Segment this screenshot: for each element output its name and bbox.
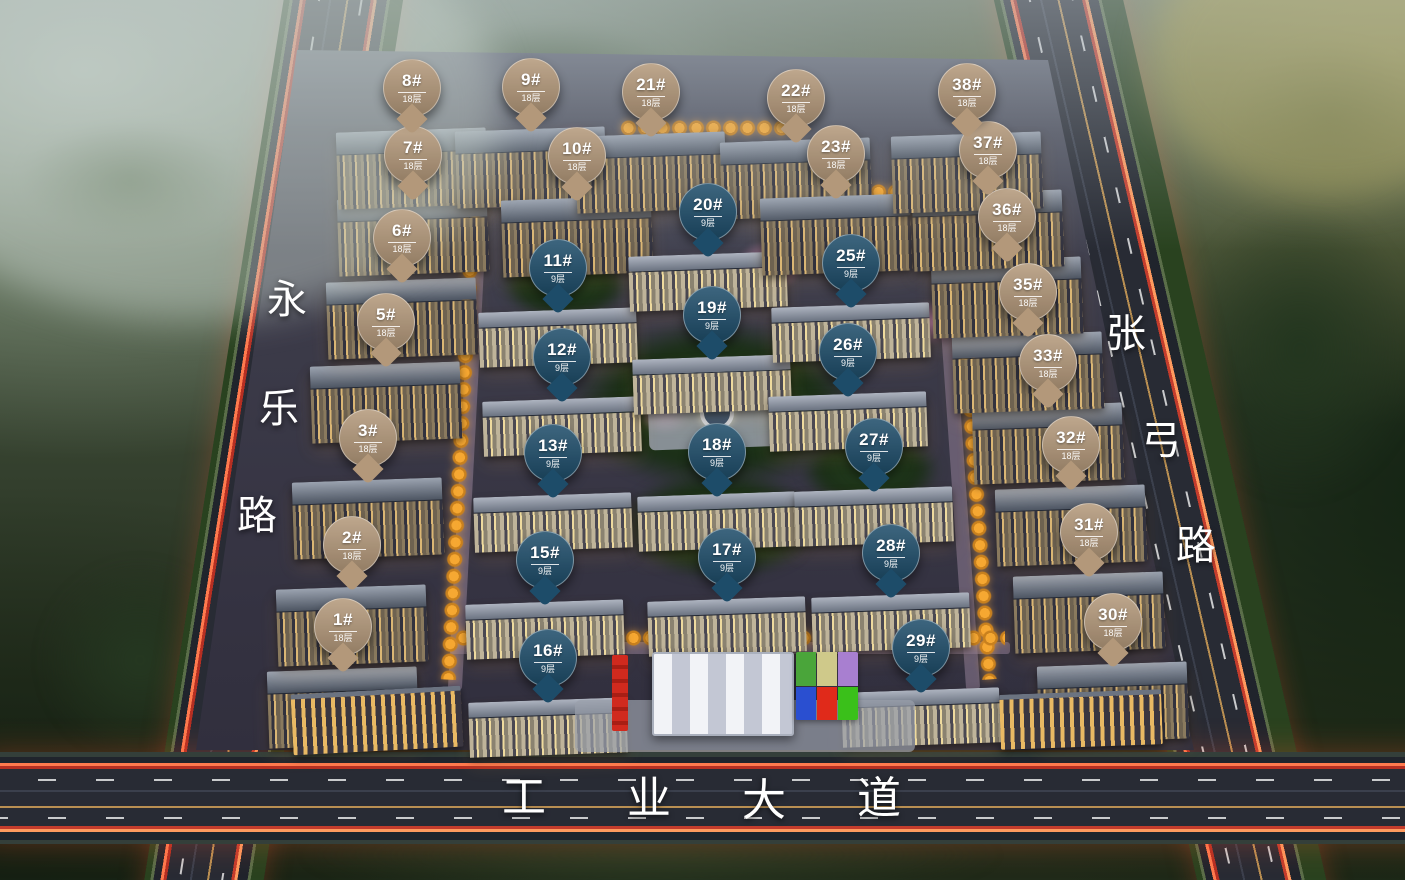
marker-floors: 18层: [1103, 629, 1122, 638]
marker-floors: 18层: [521, 94, 540, 103]
marker-number: 23#: [821, 138, 851, 156]
marker-floors: 9层: [701, 219, 715, 228]
marker-number: 15#: [530, 544, 560, 562]
marker-number: 29#: [906, 632, 936, 650]
marker-number: 12#: [547, 341, 577, 359]
marker-number: 10#: [562, 140, 592, 158]
marker-divider: [548, 361, 576, 362]
marker-number: 7#: [403, 139, 423, 157]
marker-floors: 18层: [1079, 539, 1098, 548]
marker-number: 20#: [693, 196, 723, 214]
marker-divider: [703, 456, 731, 457]
marker-number: 13#: [538, 437, 568, 455]
marker-floors: 18层: [1038, 370, 1057, 379]
mat-cell: [796, 687, 816, 721]
marker-floors: 18层: [997, 224, 1016, 233]
marker-number: 37#: [973, 134, 1003, 152]
marker-divider: [974, 154, 1002, 155]
marker-number: 35#: [1013, 276, 1043, 294]
marker-divider: [338, 549, 366, 550]
building-17: [647, 596, 807, 655]
marker-floors: 18层: [402, 95, 421, 104]
marker-floors: 18层: [978, 157, 997, 166]
marker-floors: 9层: [551, 275, 565, 284]
marker-floors: 9层: [538, 567, 552, 576]
road-name-char-yongle-road: 乐: [259, 376, 299, 434]
marker-number: 22#: [781, 82, 811, 100]
gongye-avenue-road: [0, 752, 1405, 844]
building-marker-10[interactable]: 10# 18层: [548, 127, 606, 185]
marker-divider: [698, 319, 726, 320]
building-marker-3[interactable]: 3# 18层: [339, 409, 397, 467]
marker-number: 3#: [358, 422, 378, 440]
mat-cell: [838, 652, 858, 686]
red-carpet-walk: [612, 655, 628, 731]
marker-number: 5#: [376, 306, 396, 324]
retail-strip: [291, 686, 464, 756]
marker-number: 1#: [333, 611, 353, 629]
building-marker-17[interactable]: 17# 9层: [698, 528, 756, 586]
building-marker-2[interactable]: 2# 18层: [323, 516, 381, 574]
marker-divider: [694, 216, 722, 217]
marker-divider: [1034, 367, 1062, 368]
marker-divider: [1099, 626, 1127, 627]
marker-floors: 18层: [1018, 299, 1037, 308]
marker-number: 31#: [1074, 516, 1104, 534]
building-marker-12[interactable]: 12# 9层: [533, 328, 591, 386]
road-name-char-gongye-avenue: 业: [627, 762, 671, 826]
building-marker-7[interactable]: 7# 18层: [384, 126, 442, 184]
building-marker-16[interactable]: 16# 9层: [519, 629, 577, 687]
building-marker-29[interactable]: 29# 9层: [892, 619, 950, 677]
marker-floors: 9层: [541, 665, 555, 674]
marker-floors: 9层: [844, 270, 858, 279]
marker-divider: [837, 267, 865, 268]
marker-divider: [860, 451, 888, 452]
road-name-char-yongle-road: 路: [237, 483, 277, 541]
marker-divider: [953, 96, 981, 97]
building-marker-30[interactable]: 30# 18层: [1084, 593, 1142, 651]
marker-number: 38#: [952, 76, 982, 94]
marker-divider: [1057, 449, 1085, 450]
marker-floors: 18层: [957, 99, 976, 108]
marker-number: 36#: [992, 201, 1022, 219]
road-name-char-zhanggong-road: 张: [1106, 301, 1146, 359]
building-marker-27[interactable]: 27# 9层: [845, 418, 903, 476]
marker-floors: 9层: [914, 655, 928, 664]
marker-divider: [544, 272, 572, 273]
marker-floors: 9层: [710, 459, 724, 468]
building-marker-8[interactable]: 8# 18层: [383, 59, 441, 117]
marker-floors: 18层: [641, 99, 660, 108]
masterplan-canvas: 永乐路张弓路工业大道 1# 18层2# 18层3# 18层5# 18层6#: [0, 0, 1405, 880]
mat-cell: [838, 687, 858, 721]
marker-number: 16#: [533, 642, 563, 660]
marker-floors: 9层: [705, 322, 719, 331]
marker-divider: [1014, 296, 1042, 297]
marker-divider: [539, 457, 567, 458]
marker-floors: 18层: [333, 634, 352, 643]
building-marker-32[interactable]: 32# 18层: [1042, 416, 1100, 474]
marker-number: 21#: [636, 76, 666, 94]
marker-divider: [398, 92, 426, 93]
marker-number: 18#: [702, 436, 732, 454]
building-marker-13[interactable]: 13# 9层: [524, 424, 582, 482]
marker-divider: [877, 557, 905, 558]
building-marker-9[interactable]: 9# 18层: [502, 58, 560, 116]
marker-divider: [517, 91, 545, 92]
building-facade: [648, 612, 807, 656]
building-marker-23[interactable]: 23# 18层: [807, 125, 865, 183]
play-mat: [796, 652, 858, 720]
marker-number: 33#: [1033, 347, 1063, 365]
marker-floors: 18层: [376, 329, 395, 338]
building-marker-38[interactable]: 38# 18层: [938, 63, 996, 121]
marker-number: 2#: [342, 529, 362, 547]
building-marker-20[interactable]: 20# 9层: [679, 183, 737, 241]
marker-divider: [1075, 536, 1103, 537]
building-marker-15[interactable]: 15# 9层: [516, 531, 574, 589]
marker-number: 17#: [712, 541, 742, 559]
building-marker-31[interactable]: 31# 18层: [1060, 503, 1118, 561]
building-marker-19[interactable]: 19# 9层: [683, 286, 741, 344]
building-marker-11[interactable]: 11# 9层: [529, 239, 587, 297]
lane-markings: [0, 752, 1405, 844]
marker-floors: 18层: [567, 163, 586, 172]
road-name-char-gongye-avenue: 道: [857, 762, 901, 826]
road-name-char-zhanggong-road: 弓: [1141, 408, 1181, 466]
kindergarten-building: [652, 652, 794, 736]
marker-divider: [563, 160, 591, 161]
mat-cell: [817, 687, 837, 721]
marker-divider: [372, 326, 400, 327]
marker-divider: [531, 564, 559, 565]
marker-floors: 18层: [786, 105, 805, 114]
road-name-char-gongye-avenue: 大: [742, 764, 786, 828]
marker-floors: 18层: [392, 245, 411, 254]
building-marker-25[interactable]: 25# 9层: [822, 234, 880, 292]
mat-cell: [796, 652, 816, 686]
marker-floors: 18层: [826, 161, 845, 170]
marker-divider: [399, 159, 427, 160]
retail-strip: [999, 689, 1163, 750]
marker-divider: [637, 96, 665, 97]
marker-number: 8#: [402, 72, 422, 90]
building-marker-22[interactable]: 22# 18层: [767, 69, 825, 127]
marker-number: 28#: [876, 537, 906, 555]
marker-floors: 18层: [342, 552, 361, 561]
marker-divider: [782, 102, 810, 103]
marker-divider: [354, 442, 382, 443]
marker-divider: [834, 356, 862, 357]
marker-number: 25#: [836, 247, 866, 265]
marker-number: 32#: [1056, 429, 1086, 447]
marker-floors: 18层: [403, 162, 422, 171]
marker-floors: 9层: [841, 359, 855, 368]
marker-number: 19#: [697, 299, 727, 317]
marker-divider: [907, 652, 935, 653]
marker-floors: 9层: [867, 454, 881, 463]
building-marker-36[interactable]: 36# 18层: [978, 188, 1036, 246]
marker-number: 6#: [392, 222, 412, 240]
marker-number: 26#: [833, 336, 863, 354]
mat-cell: [817, 652, 837, 686]
building-marker-5[interactable]: 5# 18层: [357, 293, 415, 351]
marker-floors: 9层: [555, 364, 569, 373]
marker-floors: 9层: [884, 560, 898, 569]
building-marker-28[interactable]: 28# 9层: [862, 524, 920, 582]
building-marker-26[interactable]: 26# 9层: [819, 323, 877, 381]
marker-floors: 9层: [546, 460, 560, 469]
marker-floors: 9层: [720, 564, 734, 573]
building-marker-1[interactable]: 1# 18层: [314, 598, 372, 656]
marker-floors: 18层: [1061, 452, 1080, 461]
marker-divider: [329, 631, 357, 632]
marker-number: 30#: [1098, 606, 1128, 624]
marker-number: 11#: [544, 252, 573, 270]
marker-divider: [388, 242, 416, 243]
building-marker-6[interactable]: 6# 18层: [373, 209, 431, 267]
building-marker-33[interactable]: 33# 18层: [1019, 334, 1077, 392]
marker-divider: [534, 662, 562, 663]
road-name-char-zhanggong-road: 路: [1176, 513, 1216, 571]
marker-floors: 18层: [358, 445, 377, 454]
marker-divider: [993, 221, 1021, 222]
building-marker-21[interactable]: 21# 18层: [622, 63, 680, 121]
marker-number: 9#: [521, 71, 541, 89]
marker-number: 27#: [859, 431, 889, 449]
marker-divider: [822, 158, 850, 159]
forest-cluster: [20, 120, 240, 240]
road-name-char-yongle-road: 永: [267, 267, 307, 325]
marker-divider: [713, 561, 741, 562]
road-name-char-gongye-avenue: 工: [502, 761, 546, 825]
building-marker-35[interactable]: 35# 18层: [999, 263, 1057, 321]
building-marker-18[interactable]: 18# 9层: [688, 423, 746, 481]
